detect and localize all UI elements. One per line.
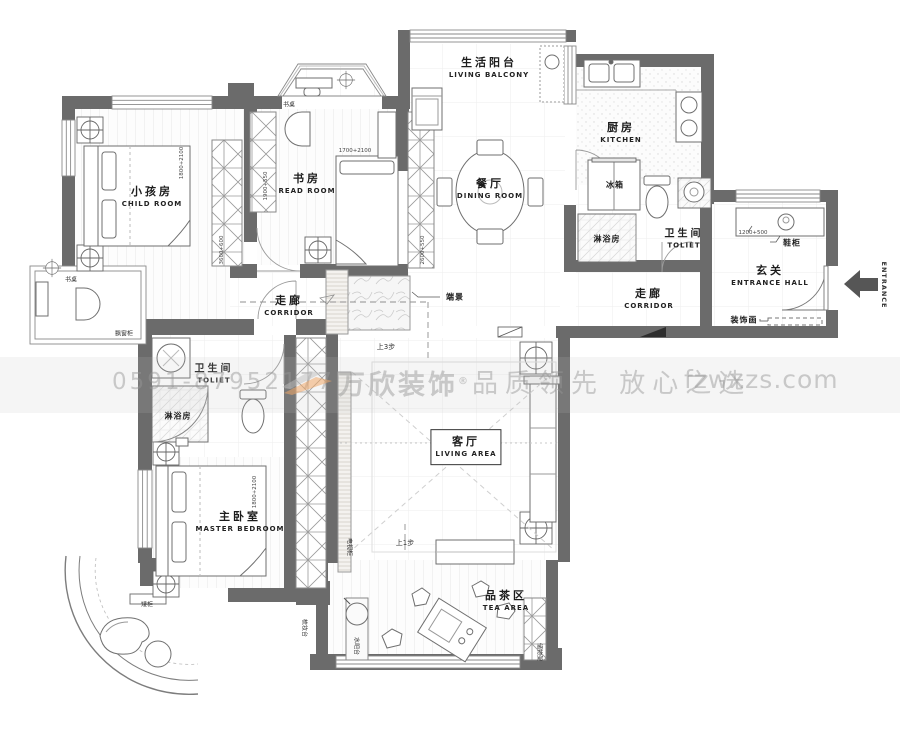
child-wardrobe (212, 140, 242, 266)
label-shoe-cabinet: 鞋柜 (783, 238, 801, 249)
dim-shoe-cabinet: 1200+500 (738, 230, 767, 236)
toilet-left-washer (152, 338, 190, 378)
label-end-scene: 端景 (446, 292, 464, 303)
balcony-cabinet (540, 46, 564, 102)
dim-cabinet-dining: 2600+550 (420, 235, 426, 264)
kitchen-sink (584, 60, 640, 87)
toilet-left-wc (240, 390, 266, 433)
dim-read-bed: 1700+2100 (339, 148, 372, 154)
label-corridor-right: 走廊 CORRIDOR (624, 288, 674, 310)
label-bay-cabinet: 飘窗柜 (115, 329, 133, 338)
toilet-top-sink (678, 178, 711, 208)
window-balcony-kitchen (564, 46, 576, 104)
end-scene-feature (348, 276, 410, 330)
spine-wardrobe (296, 338, 326, 588)
window-balcony-top (410, 30, 566, 42)
label-dresser: 梳妆台 (301, 619, 310, 637)
label-room-toilet-left: 卫生间 TOLIET (195, 364, 234, 385)
label-step-up-3: 上3步 (377, 342, 395, 352)
label-room-child-en: CHILD ROOM (122, 200, 183, 208)
kitchen-stove (676, 92, 702, 142)
label-room-child-cn: 小孩房 (122, 186, 183, 199)
label-decor-painting: 装饰画 (731, 315, 758, 326)
floor-plan: 小孩房 CHILD ROOM 书房 READ ROOM 生活阳台 LIVING … (0, 0, 900, 751)
window-child-top (112, 96, 212, 109)
window-master-left (138, 470, 152, 548)
dim-master-bed: 1800+2100 (252, 476, 258, 509)
balcony-lounge-chair (100, 618, 171, 667)
label-entrance: ENTRANCE (880, 262, 888, 309)
label-desk-top: 书桌 (283, 100, 295, 109)
window-entry-top (736, 190, 820, 202)
toilet-top-wc (644, 176, 670, 218)
label-room-balcony: 生活阳台 LIVING BALCONY (449, 57, 529, 79)
label-room-toilet-top: 卫生间 TOLIET (665, 229, 704, 250)
label-room-entry: 玄关 ENTRANCE HALL (731, 265, 809, 287)
label-tv-cabinet: 电视柜 (346, 538, 355, 556)
label-step-up-1: 上1步 (396, 538, 414, 548)
entrance-arrow (844, 270, 878, 298)
dim-wardrobe-read: 1900+550 (263, 171, 269, 200)
label-shower-top: 淋浴房 (594, 234, 621, 245)
dim-wardrobe-child: 3600+600 (219, 235, 225, 264)
label-room-kitchen: 厨房 KITCHEN (600, 122, 641, 144)
living-bench (436, 540, 514, 564)
label-room-master: 主卧室 MASTER BEDROOM (196, 511, 285, 533)
door-entry-leaf (824, 266, 828, 310)
label-storage-rack: 储物架 (536, 643, 545, 661)
plan-drawing (0, 0, 900, 751)
label-room-living: 客厅 LIVING AREA (430, 429, 501, 465)
label-room-child: 小孩房 CHILD ROOM (122, 186, 183, 208)
balcony-washer (412, 88, 442, 130)
label-room-tea: 品茶区 TEA AREA (483, 590, 529, 612)
label-corridor-left: 走廊 CORRIDOR (264, 295, 314, 317)
dim-child-bed: 1800+2100 (179, 147, 185, 180)
label-low-cabinet: 矮柜 (141, 600, 153, 609)
window-child-left (62, 120, 75, 176)
label-fridge: 冰箱 (606, 180, 624, 191)
label-room-dining: 餐厅 DINING ROOM (457, 178, 523, 200)
label-water-bar: 水吧台 (353, 637, 362, 655)
label-room-read: 书房 READ ROOM (278, 173, 335, 195)
label-shower-left: 淋浴房 (165, 411, 192, 422)
label-desk-left: 书桌 (65, 275, 77, 284)
